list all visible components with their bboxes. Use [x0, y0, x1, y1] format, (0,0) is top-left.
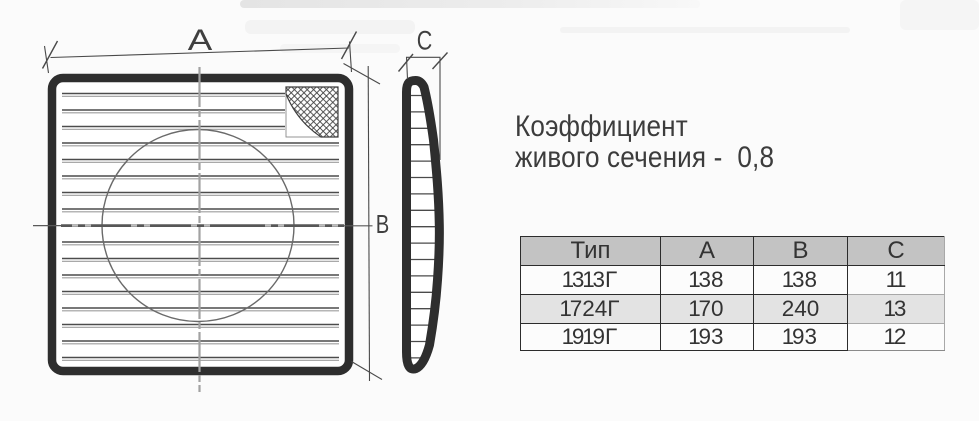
svg-text:C: C [417, 26, 433, 56]
svg-text:B: B [376, 209, 390, 239]
svg-text:A: A [188, 24, 213, 57]
